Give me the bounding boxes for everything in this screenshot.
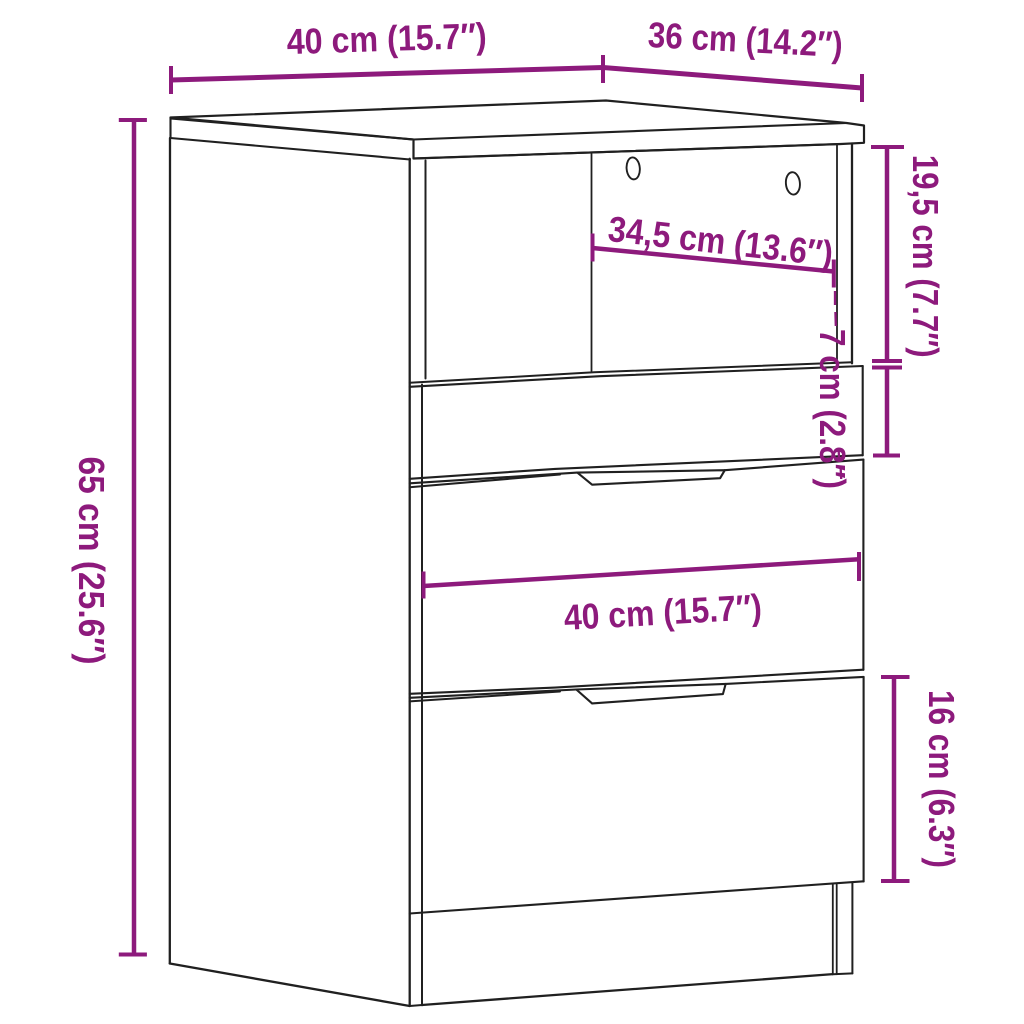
svg-text:7 cm (2.8″): 7 cm (2.8″) [812,329,853,489]
svg-text:40 cm (15.7″): 40 cm (15.7″) [563,586,763,638]
svg-text:36 cm (14.2″): 36 cm (14.2″) [647,14,844,65]
svg-text:40 cm (15.7″): 40 cm (15.7″) [286,15,487,62]
svg-text:16 cm (6.3″): 16 cm (6.3″) [921,690,962,868]
svg-text:19,5 cm (7.7″): 19,5 cm (7.7″) [905,155,946,358]
svg-text:65 cm (25.6″): 65 cm (25.6″) [71,457,112,665]
svg-text:34,5 cm (13.6″): 34,5 cm (13.6″) [606,208,835,274]
